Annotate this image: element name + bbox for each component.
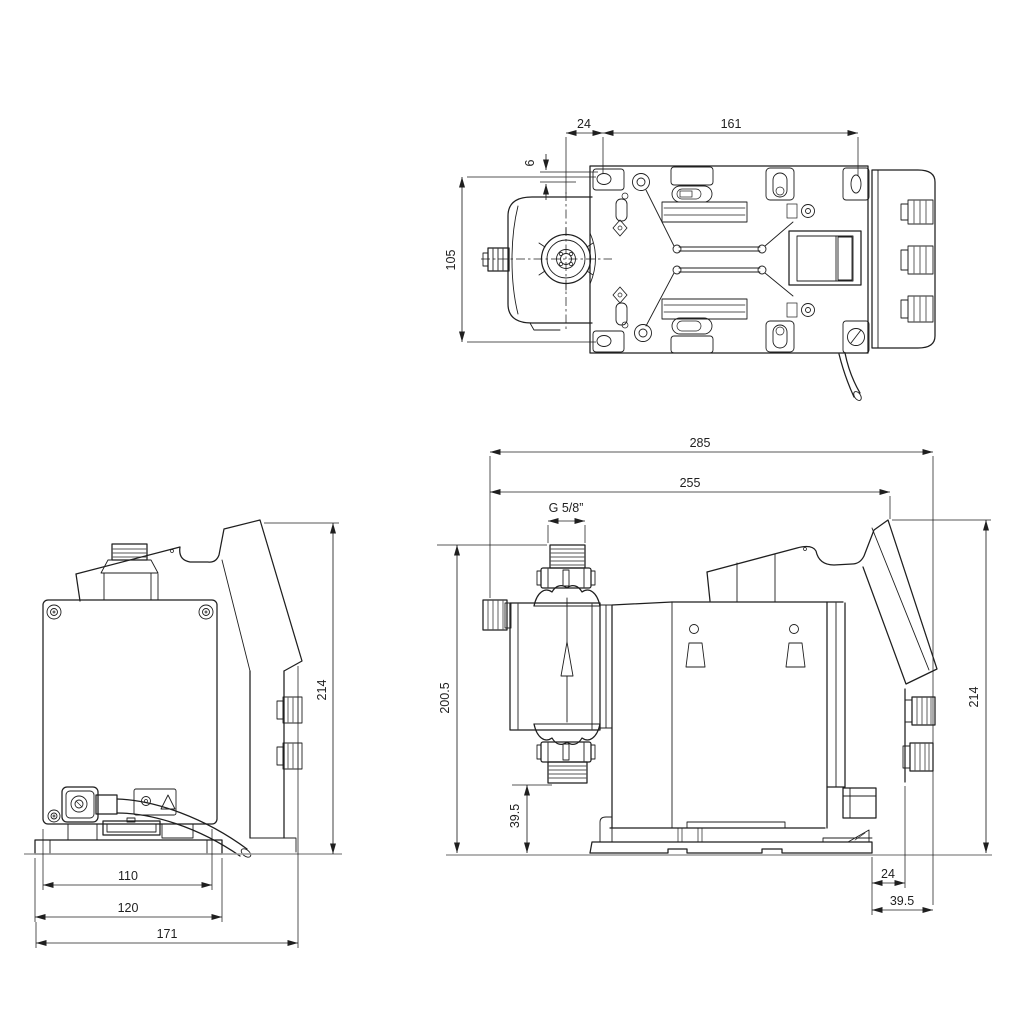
pump-housing-side [600, 602, 935, 842]
head-coupling [600, 605, 612, 728]
pump-head-side [483, 545, 612, 783]
front-housing-top [872, 170, 935, 348]
dim-120-base-width: 120 [35, 858, 222, 922]
dim-label: 24 [881, 867, 895, 881]
dim-161-hole-span: 161 [603, 117, 858, 176]
dim-200-5-height: 200.5 [437, 545, 547, 853]
dim-label: 39.5 [508, 804, 522, 828]
mounting-hole-pad [593, 168, 869, 353]
dim-label: 285 [690, 436, 711, 450]
dim-105-height: 105 [444, 177, 596, 342]
dim-171-depth: 171 [36, 666, 298, 948]
side-knob-top [901, 200, 933, 322]
dim-thread-size: G 5/8” [548, 501, 585, 543]
dim-label: 200.5 [438, 682, 452, 713]
top-view: 24 161 6 105 [444, 117, 935, 402]
back-plate [43, 600, 217, 824]
rib-bands [662, 202, 747, 319]
thread-connection-rear [101, 544, 158, 573]
dim-label: 105 [444, 250, 458, 271]
dim-label: 6 [523, 159, 537, 166]
dim-label: 161 [721, 117, 742, 131]
side-knob [903, 697, 935, 771]
flow-direction-arrow-icon [561, 598, 573, 722]
plate-screw [47, 605, 213, 822]
dim-label: 171 [157, 927, 178, 941]
dim-label: 120 [118, 901, 139, 915]
dim-label: 255 [680, 476, 701, 490]
rear-bracket-side [843, 689, 905, 818]
suction-valve [534, 724, 600, 783]
terminal-box-top [787, 204, 861, 317]
dim-label: 110 [118, 869, 138, 883]
technical-drawing-page: 24 161 6 105 [0, 0, 1024, 1024]
dim-214-side-height: 214 [892, 520, 991, 853]
dim-label: 214 [967, 687, 981, 708]
motor-housing-top [508, 197, 592, 330]
dim-label: 39.5 [890, 894, 914, 908]
dim-label: 214 [315, 680, 329, 701]
mounting-plate [590, 166, 869, 353]
housing-side-rear [250, 671, 302, 852]
vent-valve-knob [483, 600, 511, 630]
rear-view: 214 110 120 171 [24, 520, 342, 948]
cable-gland [62, 787, 98, 822]
dim-39-5-port-height: 39.5 [508, 785, 552, 853]
valve-knob-top [483, 248, 509, 271]
dosing-pump-dimensional-drawing: 24 161 6 105 [0, 0, 1024, 1024]
discharge-valve [534, 545, 600, 606]
wall-bracket-keyhole [686, 625, 805, 668]
base-plate-side [590, 830, 872, 853]
dim-39-5-overhang: 39.5 [872, 894, 933, 910]
control-cover-rear [76, 520, 302, 671]
dim-24-mount-offset: 24 [566, 117, 603, 194]
central-truss [646, 190, 793, 326]
side-view: 285 255 G 5/8” 200.5 39.5 214 [437, 436, 992, 915]
power-cable-top [839, 353, 863, 402]
rib-details-left [613, 199, 627, 325]
dim-label: G 5/8” [549, 501, 584, 515]
dim-label: 24 [577, 117, 591, 131]
power-cable-rear [96, 795, 252, 859]
plate-tabs [671, 167, 794, 353]
